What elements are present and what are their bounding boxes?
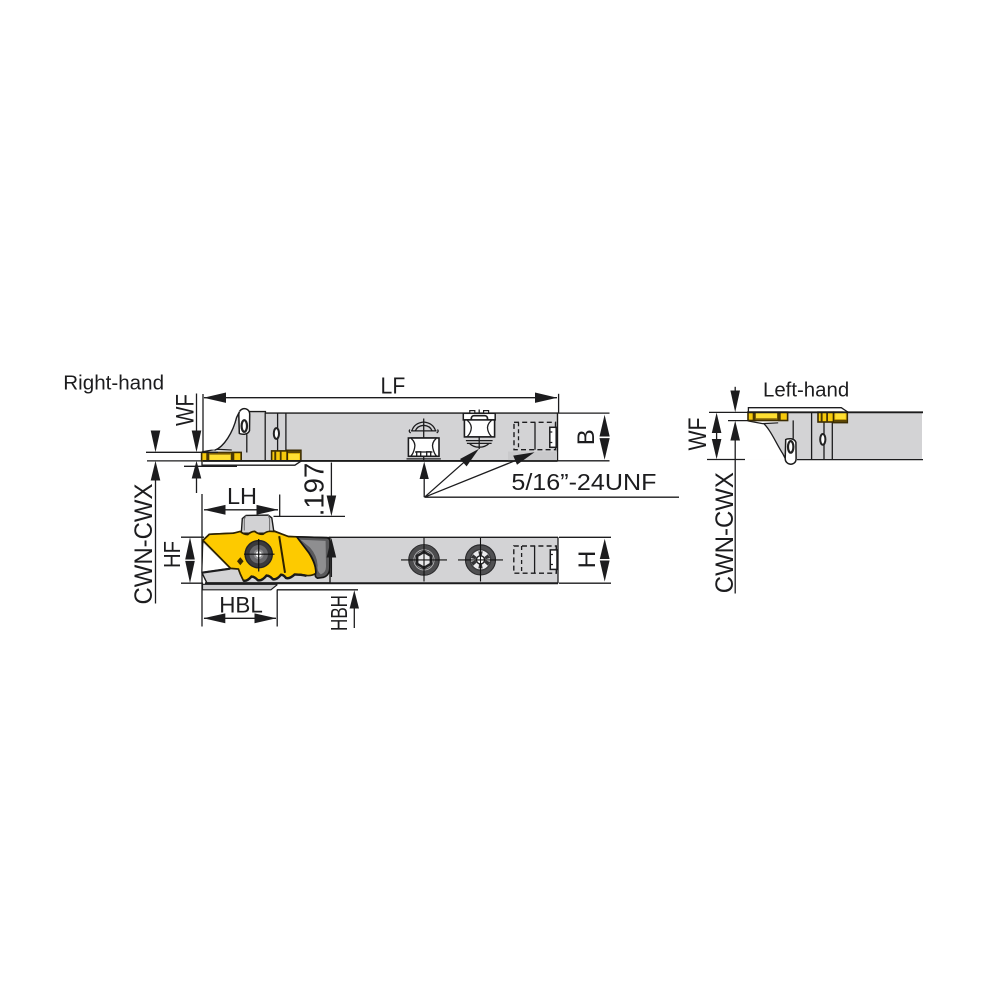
svg-text:LH: LH <box>227 483 257 509</box>
svg-text:CWN-CWX: CWN-CWX <box>130 483 158 604</box>
svg-text:CWN-CWX: CWN-CWX <box>711 472 739 593</box>
svg-text:HBL: HBL <box>219 593 263 618</box>
svg-text:WF: WF <box>684 418 712 451</box>
svg-text:LF: LF <box>381 372 406 398</box>
svg-text:B: B <box>573 429 600 445</box>
svg-text:HBH: HBH <box>326 595 352 631</box>
svg-text:5/16”-24UNF: 5/16”-24UNF <box>511 469 656 495</box>
svg-text:H: H <box>574 551 601 569</box>
svg-text:WF: WF <box>172 394 200 426</box>
svg-text:Right-hand: Right-hand <box>63 372 164 395</box>
svg-text:HF: HF <box>159 541 185 568</box>
svg-text:.197: .197 <box>298 463 329 517</box>
svg-text:Left-hand: Left-hand <box>763 380 849 402</box>
